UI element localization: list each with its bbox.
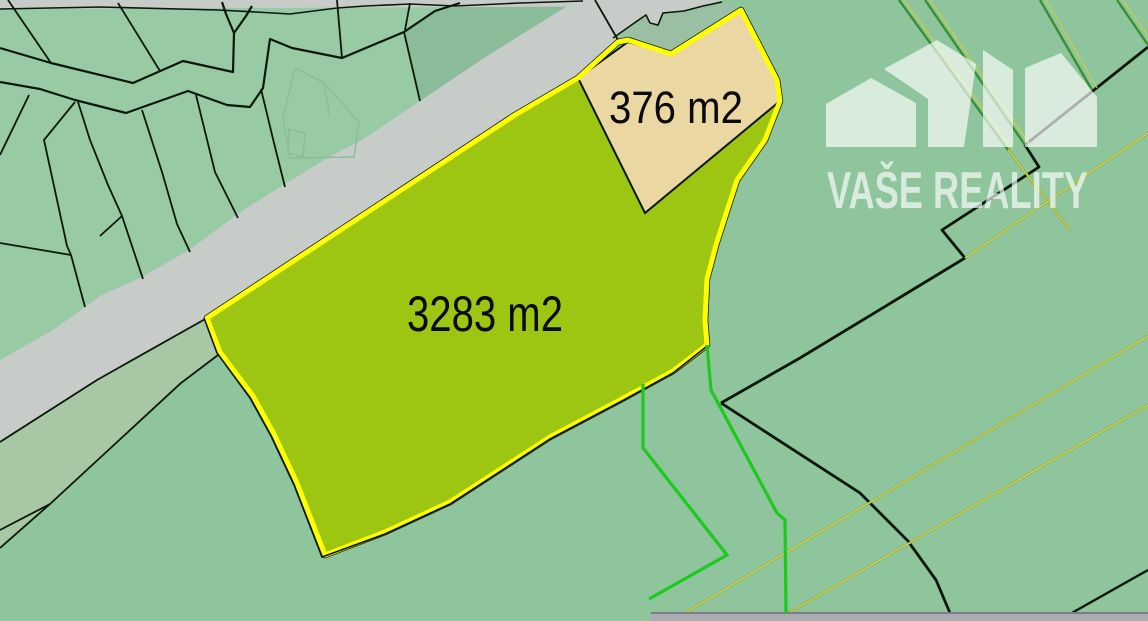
svg-text:376 m2: 376 m2 [609,82,743,133]
svg-text:3283 m2: 3283 m2 [407,286,563,342]
svg-text:VAŠE REALITY: VAŠE REALITY [827,161,1088,220]
